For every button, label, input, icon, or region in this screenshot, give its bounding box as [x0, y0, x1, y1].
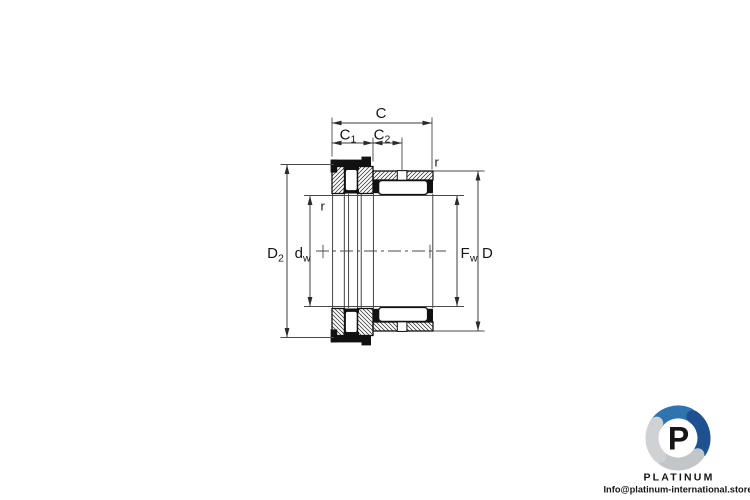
- end-cap-hook: [331, 160, 338, 173]
- dim-label-fw-sub: w: [469, 253, 478, 265]
- radius-label-right: r: [435, 155, 440, 170]
- dim-label-c1-sub: 1: [351, 134, 357, 146]
- bearing-drawing: C C 1 C 2 r r D 2 d w: [0, 0, 750, 500]
- dimension-c2: C 2: [373, 127, 402, 172]
- dim-label-dw-sub: w: [302, 253, 311, 265]
- logo-petal-left: [652, 423, 660, 456]
- bearing-top-half-section: [331, 157, 433, 195]
- axial-roller: [345, 169, 357, 191]
- dim-label-d2-sub: 2: [278, 253, 284, 265]
- axis-centerline: [316, 245, 446, 259]
- logo-petal-right: [693, 417, 704, 451]
- logo-wordmark: PLATINUM: [643, 472, 714, 484]
- logo-email: Info@platinum-international.store: [603, 485, 750, 495]
- dimension-c1: C 1: [332, 127, 373, 146]
- radius-label-left: r: [321, 199, 326, 214]
- dim-label-c2: C: [374, 127, 385, 144]
- dim-label-c: C: [376, 105, 387, 122]
- dimension-fw: F w: [455, 196, 478, 307]
- bearing-bottom-half-section: [331, 307, 433, 345]
- drawing-canvas: C C 1 C 2 r r D 2 d w: [0, 0, 750, 500]
- dimension-dw: d w: [295, 196, 313, 307]
- dim-label-d: D: [482, 245, 493, 262]
- dim-label-d2: D: [267, 245, 278, 262]
- axial-washer-right: [358, 167, 374, 194]
- dim-label-dw: d: [295, 245, 303, 262]
- dim-label-c2-sub: 2: [385, 134, 391, 146]
- dim-label-fw: F: [461, 245, 470, 262]
- platinum-logo-icon: P: [652, 412, 704, 464]
- dim-label-c1: C: [340, 127, 351, 144]
- end-cap-lip: [362, 157, 372, 167]
- needle-roller: [379, 181, 428, 195]
- logo-monogram: P: [668, 421, 689, 457]
- lubrication-hole: [397, 171, 407, 181]
